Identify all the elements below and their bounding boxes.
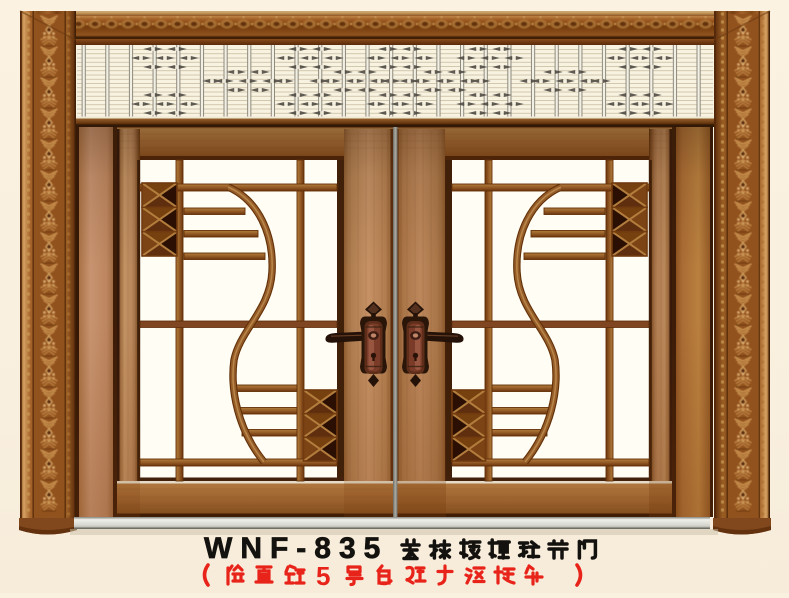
- svg-text:WNF-835: WNF-835: [204, 532, 388, 565]
- svg-text:5: 5: [316, 561, 330, 591]
